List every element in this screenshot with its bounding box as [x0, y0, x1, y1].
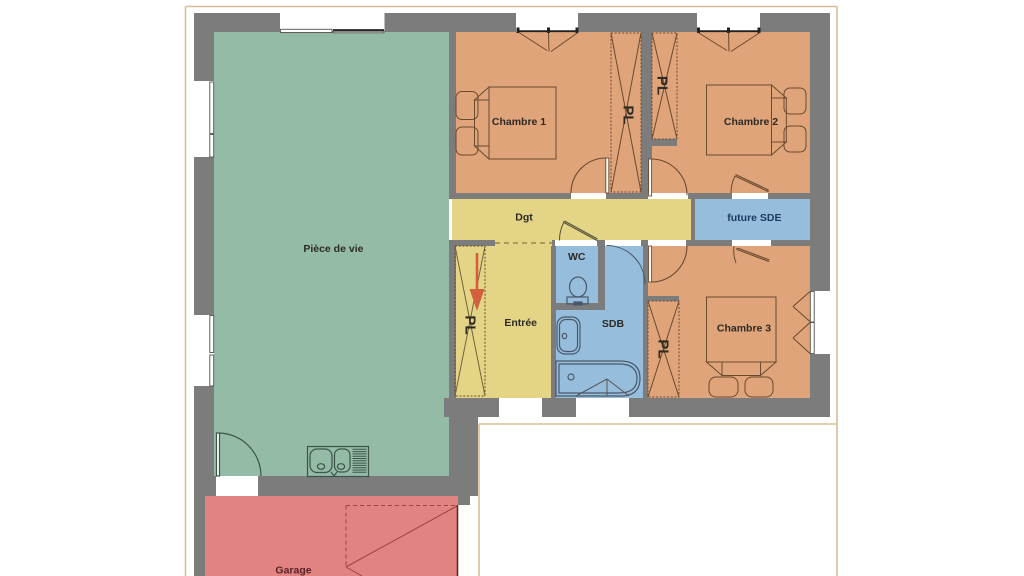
- svg-text:Chambre 3: Chambre 3: [717, 323, 771, 335]
- svg-text:Dgt: Dgt: [515, 212, 533, 224]
- svg-text:future SDE: future SDE: [727, 212, 781, 224]
- svg-text:Pièce de vie: Pièce de vie: [303, 243, 363, 255]
- svg-text:Garage: Garage: [275, 565, 311, 576]
- svg-text:Chambre 1: Chambre 1: [492, 116, 546, 128]
- svg-text:SDB: SDB: [602, 318, 625, 330]
- svg-text:PL: PL: [655, 339, 672, 358]
- svg-text:WC: WC: [568, 251, 586, 263]
- svg-text:Chambre 2: Chambre 2: [724, 116, 778, 128]
- svg-text:Entrée: Entrée: [504, 317, 537, 329]
- svg-text:PL: PL: [654, 76, 671, 95]
- svg-text:PL: PL: [462, 315, 479, 334]
- svg-text:PL: PL: [620, 105, 637, 124]
